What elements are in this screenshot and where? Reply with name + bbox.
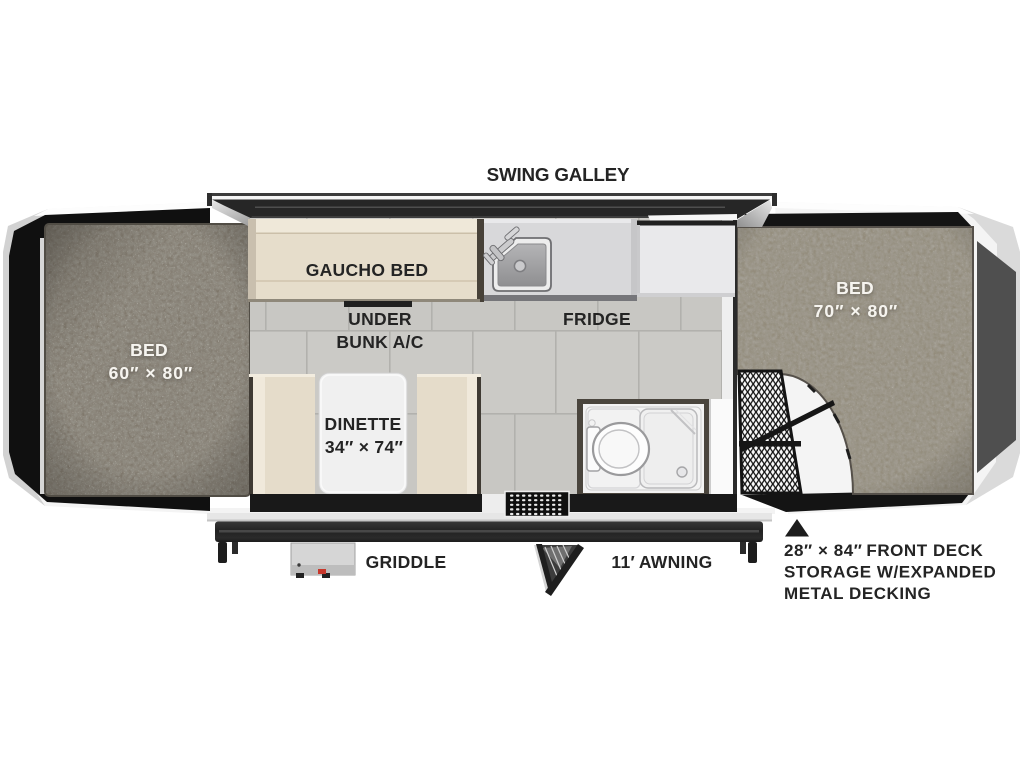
svg-text:34″ × 74″: 34″ × 74″ (325, 437, 404, 457)
svg-text:11′ AWNING: 11′ AWNING (611, 552, 712, 572)
svg-text:28″ × 84″ FRONT DECK: 28″ × 84″ FRONT DECK (784, 541, 983, 560)
svg-text:GRIDDLE: GRIDDLE (366, 552, 447, 572)
svg-text:DINETTE: DINETTE (325, 414, 402, 434)
svg-text:STORAGE W/EXPANDED: STORAGE W/EXPANDED (784, 563, 996, 582)
svg-text:BED: BED (836, 278, 874, 298)
svg-text:FRIDGE: FRIDGE (563, 309, 631, 329)
svg-text:UNDER: UNDER (348, 309, 412, 329)
svg-text:BUNK A/C: BUNK A/C (336, 332, 423, 352)
svg-text:60″ × 80″: 60″ × 80″ (109, 363, 194, 383)
svg-text:BED: BED (130, 340, 168, 360)
svg-text:70″ × 80″: 70″ × 80″ (814, 301, 899, 321)
svg-text:GAUCHO BED: GAUCHO BED (306, 260, 429, 280)
svg-text:METAL DECKING: METAL DECKING (784, 584, 931, 603)
svg-text:SWING GALLEY: SWING GALLEY (487, 164, 630, 185)
